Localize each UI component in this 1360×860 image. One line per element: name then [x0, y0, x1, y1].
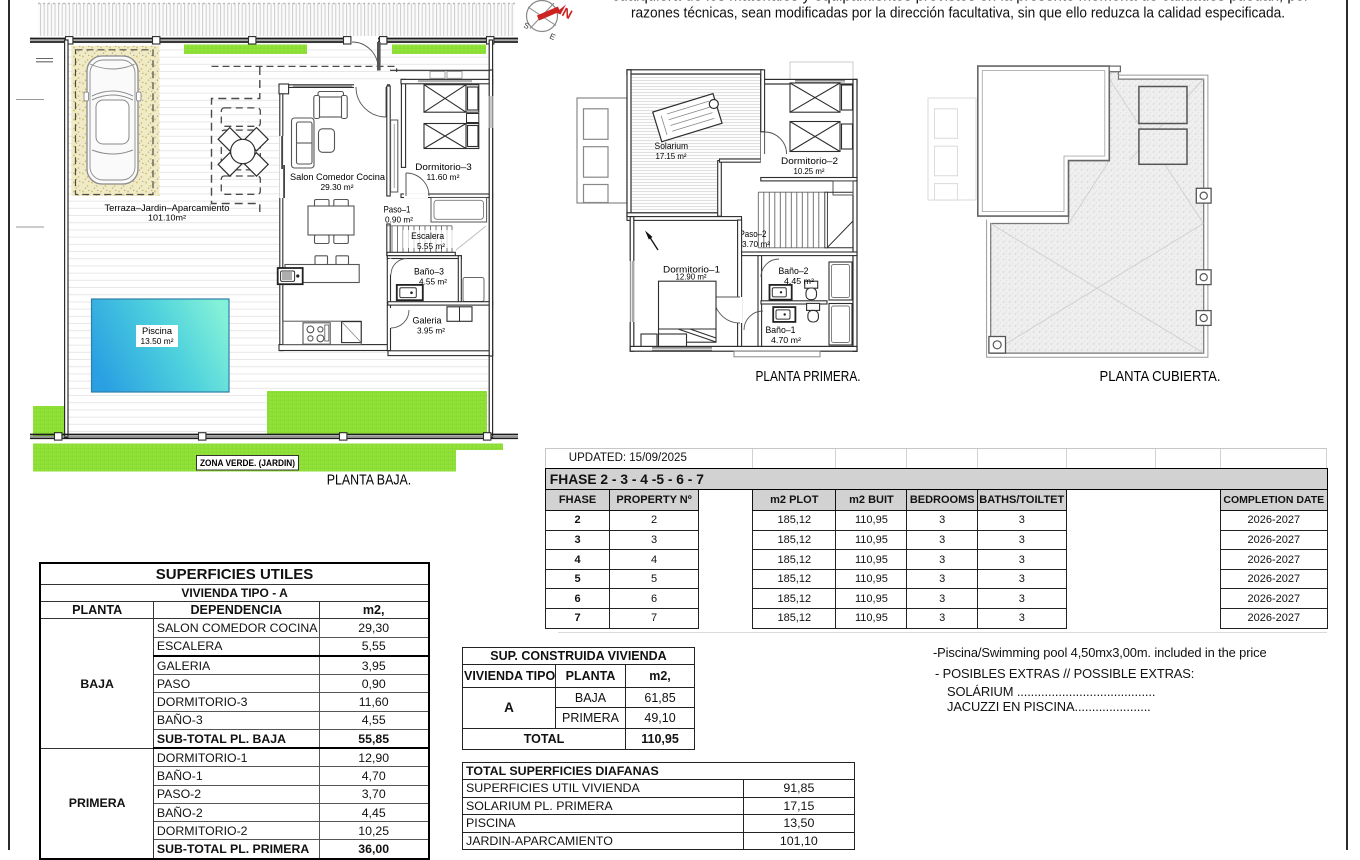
svg-text:11.60 m²: 11.60 m²: [427, 173, 460, 182]
svg-text:3.70 m²: 3.70 m²: [742, 240, 770, 249]
svg-text:Baño–1: Baño–1: [766, 325, 796, 335]
svg-text:Dormitorio–2: Dormitorio–2: [781, 156, 838, 166]
svg-text:ZONA VERDE. (JARDIN): ZONA VERDE. (JARDIN): [200, 458, 295, 468]
svg-text:4.70 m²: 4.70 m²: [771, 336, 801, 345]
svg-text:Terraza–Jardin–Aparcamiento: Terraza–Jardin–Aparcamiento: [105, 203, 230, 213]
svg-text:Piscina: Piscina: [142, 326, 172, 336]
svg-text:cualquiera de los materiales y: cualquiera de los materiales y equipamie…: [612, 0, 1309, 5]
svg-text:Solarium: Solarium: [655, 141, 689, 151]
svg-text:Escalera: Escalera: [411, 231, 445, 241]
svg-text:Baño–3: Baño–3: [414, 267, 444, 277]
svg-text:17.15 m²: 17.15 m²: [656, 152, 687, 161]
svg-text:0.90 m²: 0.90 m²: [385, 216, 413, 225]
svg-text:10.25 m²: 10.25 m²: [794, 167, 825, 176]
svg-text:4.45 m²: 4.45 m²: [784, 277, 814, 286]
svg-text:Paso–2: Paso–2: [740, 229, 767, 239]
svg-text:Paso–1: Paso–1: [384, 205, 411, 215]
svg-text:N: N: [560, 4, 575, 22]
svg-text:13.50 m²: 13.50 m²: [141, 337, 174, 346]
svg-text:razones técnicas, sean modific: razones técnicas, sean modificadas por l…: [631, 6, 1285, 22]
svg-text:29.30 m²: 29.30 m²: [321, 183, 354, 192]
svg-text:5.55 m²: 5.55 m²: [417, 242, 445, 251]
svg-text:12.90 m²: 12.90 m²: [676, 273, 707, 282]
svg-text:PLANTA PRIMERA.: PLANTA PRIMERA.: [756, 368, 861, 385]
svg-text:E: E: [548, 32, 557, 42]
svg-text:PLANTA CUBIERTA.: PLANTA CUBIERTA.: [1100, 368, 1221, 385]
svg-text:Salon Comedor Cocina: Salon Comedor Cocina: [290, 172, 386, 182]
svg-text:3.95 m²: 3.95 m²: [417, 327, 445, 336]
svg-text:Galeria: Galeria: [413, 316, 443, 326]
svg-text:4.55 m²: 4.55 m²: [419, 278, 447, 287]
svg-text:Baño–2: Baño–2: [779, 266, 809, 276]
svg-text:PLANTA BAJA.: PLANTA BAJA.: [327, 472, 412, 489]
svg-text:101.10m²: 101.10m²: [148, 214, 186, 223]
svg-text:Dormitorio–3: Dormitorio–3: [415, 162, 472, 172]
